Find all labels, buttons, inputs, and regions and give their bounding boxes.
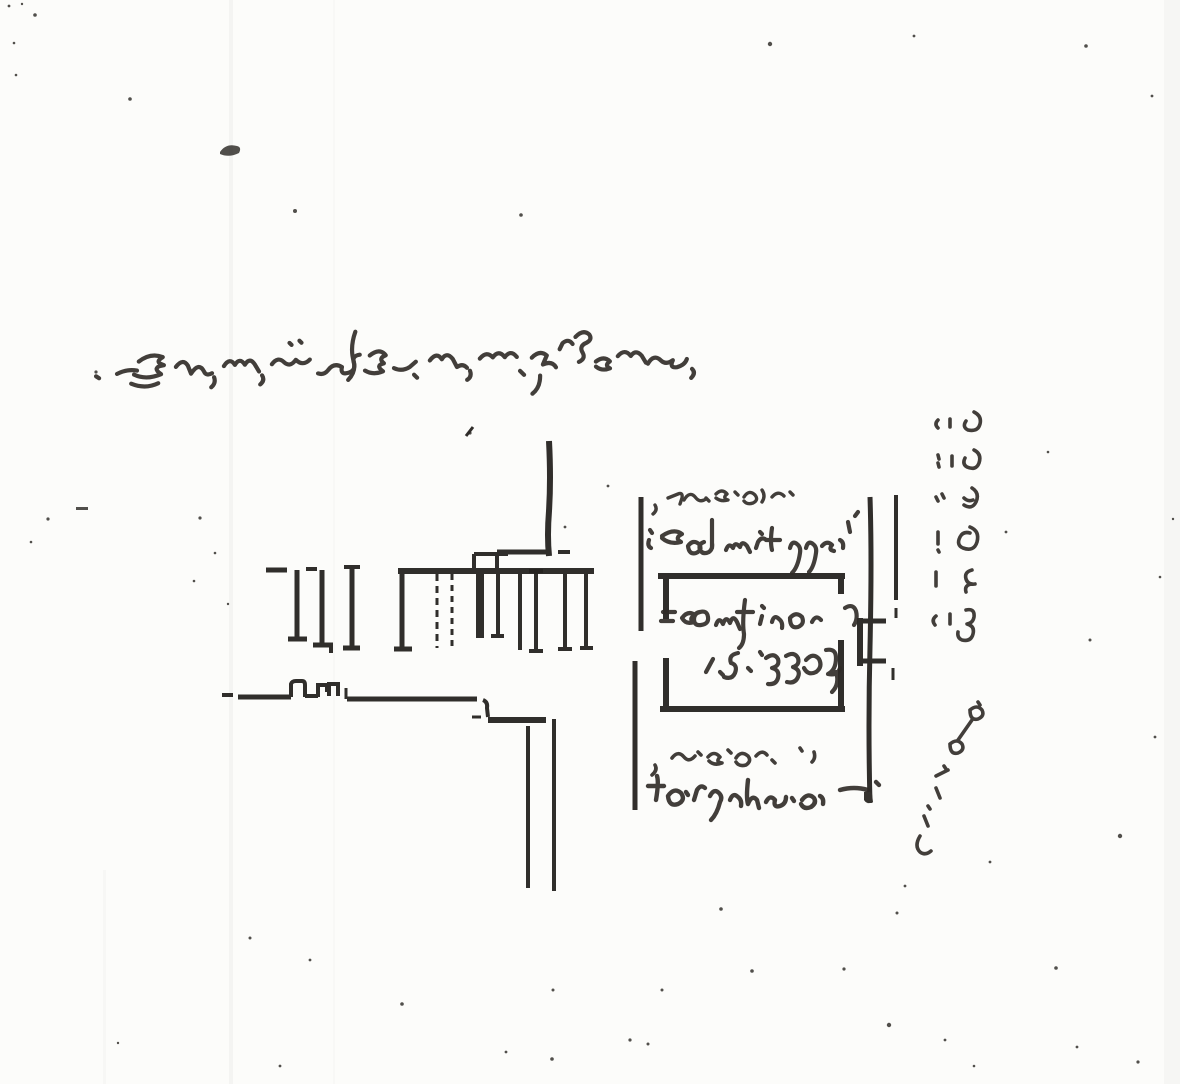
- noise-speck: [293, 209, 297, 213]
- noise-speck: [94, 370, 97, 373]
- noise-speck: [1154, 736, 1157, 739]
- scan-noise: [8, 3, 1175, 1068]
- noise-speck: [1084, 44, 1088, 48]
- noise-speck: [1159, 576, 1162, 579]
- lower-note-line-1: [652, 748, 815, 775]
- noise-speck: [750, 969, 754, 973]
- noise-speck: [1054, 966, 1058, 970]
- noise-speck: [607, 485, 610, 488]
- handwritten-side-column-lower: [917, 702, 983, 854]
- scanner-streak: [103, 870, 106, 1084]
- room-rectangle: [658, 576, 845, 709]
- plan-stair-treads: [437, 571, 593, 651]
- handwritten-room-label: [661, 600, 857, 692]
- noise-speck: [193, 580, 196, 583]
- noise-speck: [1151, 95, 1154, 98]
- handwritten-side-column-upper: [933, 412, 980, 640]
- upper-note-line-1: [653, 490, 793, 514]
- noise-speck: [550, 1057, 554, 1061]
- noise-speck: [1076, 1046, 1079, 1049]
- noise-speck: [628, 1038, 631, 1041]
- noise-speck: [279, 1065, 282, 1068]
- noise-speck: [647, 1043, 650, 1046]
- noise-speck: [309, 959, 312, 962]
- noise-speck: [989, 861, 992, 864]
- scanned-page: [0, 0, 1180, 1084]
- noise-speck: [519, 213, 523, 217]
- noise-speck: [1089, 639, 1092, 642]
- noise-speck: [719, 907, 723, 911]
- room-label-line-1: [661, 600, 857, 648]
- door-detail: [860, 618, 886, 666]
- noise-speck: [33, 13, 37, 17]
- tall-wall-line: [548, 441, 550, 556]
- noise-speck: [15, 74, 18, 77]
- noise-speck: [973, 1065, 976, 1068]
- noise-speck: [8, 5, 11, 8]
- handwritten-title: [95, 326, 694, 401]
- noise-speck: [198, 516, 201, 519]
- ink-blob: [220, 145, 240, 156]
- noise-speck: [768, 42, 772, 46]
- noise-speck: [842, 967, 845, 970]
- noise-speck: [896, 912, 899, 915]
- noise-speck: [505, 1051, 508, 1054]
- noise-speck: [46, 517, 49, 520]
- noise-speck: [1118, 834, 1122, 838]
- noise-speck: [1005, 531, 1008, 534]
- noise-speck: [1047, 451, 1050, 454]
- noise-speck: [944, 1039, 947, 1042]
- noise-speck: [1172, 518, 1174, 520]
- noise-speck: [21, 3, 23, 5]
- noise-speck: [1136, 1060, 1139, 1063]
- scanner-streak: [333, 0, 335, 1084]
- noise-dash: [76, 507, 88, 510]
- lower-note-line-2: [648, 776, 879, 820]
- noise-speck: [564, 526, 567, 529]
- room-label-line-2: [706, 650, 840, 692]
- handwritten-note-lower: [648, 748, 879, 820]
- document-scan: [0, 0, 1180, 1084]
- noise-speck: [400, 1002, 404, 1006]
- noise-speck: [249, 937, 252, 940]
- noise-speck: [661, 989, 664, 992]
- noise-speck: [913, 35, 916, 38]
- noise-speck: [227, 603, 229, 605]
- scanner-streak: [229, 0, 233, 1084]
- noise-speck: [468, 431, 471, 434]
- noise-speck: [214, 552, 217, 555]
- handwritten-note-upper: [648, 490, 858, 573]
- noise-speck: [128, 97, 132, 101]
- noise-speck: [904, 885, 907, 888]
- noise-speck: [887, 1023, 891, 1027]
- noise-speck: [13, 42, 16, 45]
- plan-left-wing: [222, 427, 594, 891]
- noise-speck: [30, 541, 33, 544]
- scanner-streak: [1164, 0, 1180, 1084]
- noise-speck: [552, 989, 555, 992]
- upper-note-line-2: [648, 512, 858, 573]
- noise-speck: [117, 1042, 119, 1044]
